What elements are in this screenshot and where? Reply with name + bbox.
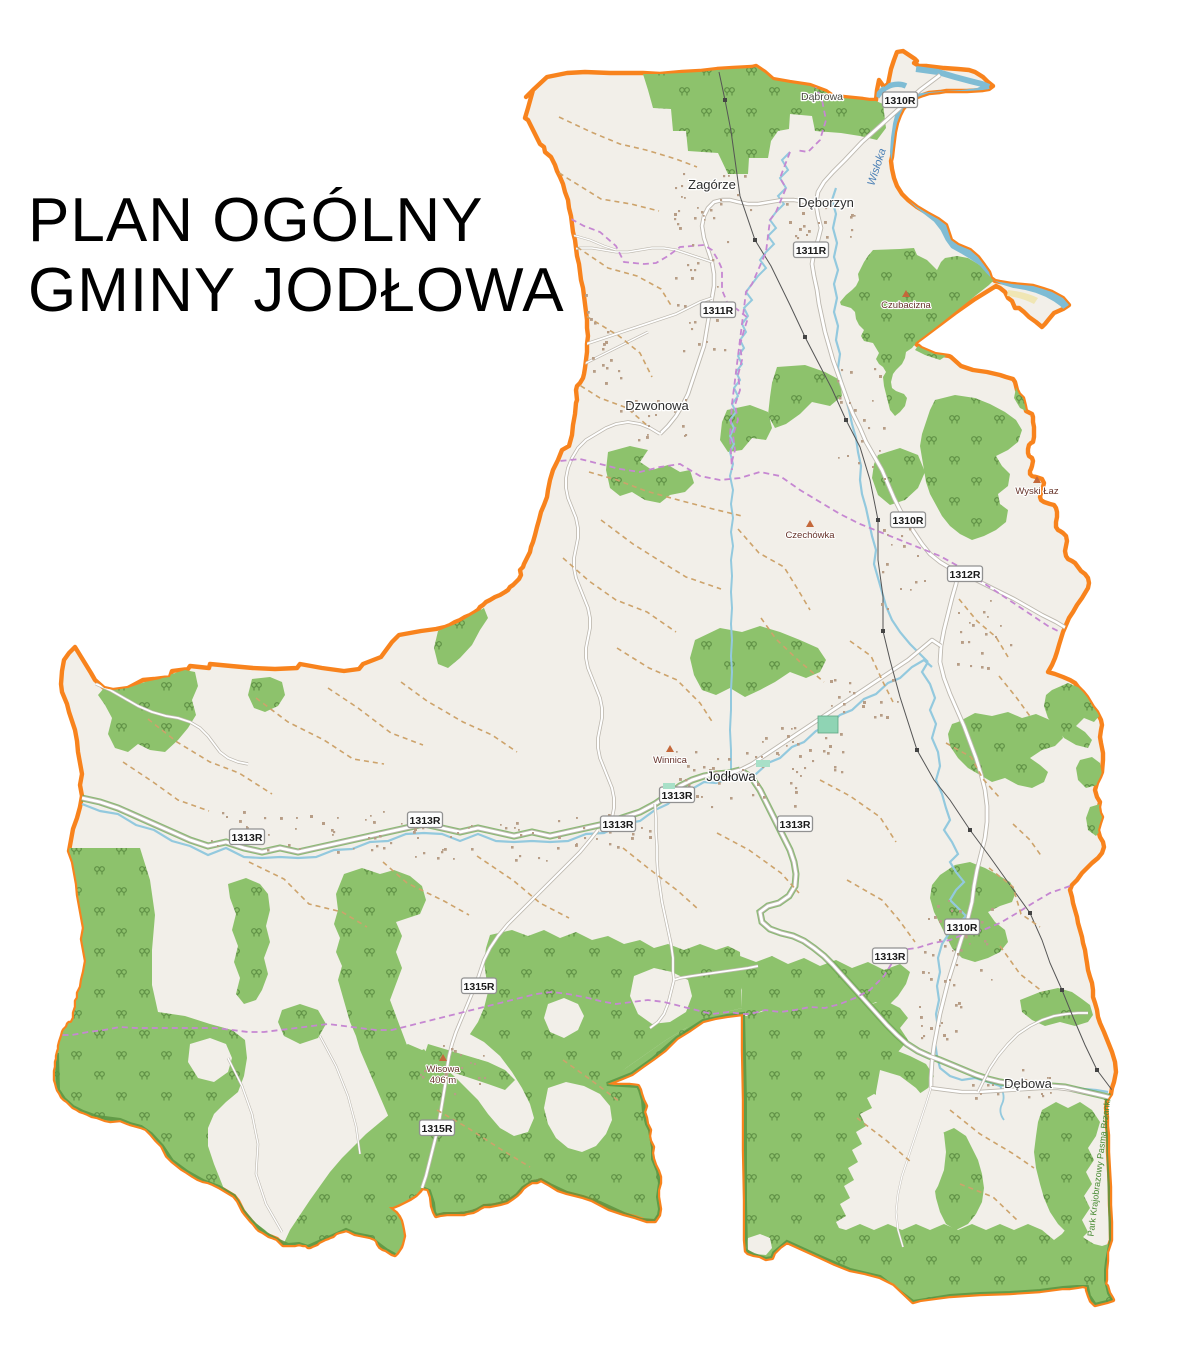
svg-text:1313R: 1313R <box>410 815 441 827</box>
svg-text:1315R: 1315R <box>422 1123 453 1135</box>
svg-text:1311R: 1311R <box>796 245 827 257</box>
svg-text:1313R: 1313R <box>780 819 811 831</box>
svg-text:1310R: 1310R <box>893 515 924 527</box>
svg-text:Dębowa: Dębowa <box>1004 1076 1052 1091</box>
svg-text:1315R: 1315R <box>464 981 495 993</box>
svg-text:406 m: 406 m <box>430 1075 456 1086</box>
svg-text:1310R: 1310R <box>885 95 916 107</box>
svg-text:PLAN OGÓLNY: PLAN OGÓLNY <box>28 186 483 255</box>
svg-text:Zagórze: Zagórze <box>688 177 736 192</box>
svg-text:Dąbrowa: Dąbrowa <box>801 91 843 103</box>
svg-text:1313R: 1313R <box>603 819 634 831</box>
svg-text:Wisowa: Wisowa <box>426 1064 460 1075</box>
svg-text:1312R: 1312R <box>950 569 981 581</box>
svg-text:Dzwonowa: Dzwonowa <box>625 398 689 413</box>
svg-text:1313R: 1313R <box>875 951 906 963</box>
svg-text:Jodłowa: Jodłowa <box>706 769 756 784</box>
svg-text:Dęborzyn: Dęborzyn <box>798 195 854 210</box>
svg-text:GMINY JODŁOWA: GMINY JODŁOWA <box>28 256 565 325</box>
svg-text:Wyski Łaz: Wyski Łaz <box>1015 486 1058 497</box>
svg-text:1313R: 1313R <box>662 790 693 802</box>
svg-text:1310R: 1310R <box>947 922 978 934</box>
svg-text:1313R: 1313R <box>232 832 263 844</box>
svg-text:1311R: 1311R <box>703 305 734 317</box>
svg-text:Czubacizna: Czubacizna <box>881 300 931 311</box>
svg-text:Czechówka: Czechówka <box>785 530 835 541</box>
svg-text:Winnica: Winnica <box>653 755 688 766</box>
